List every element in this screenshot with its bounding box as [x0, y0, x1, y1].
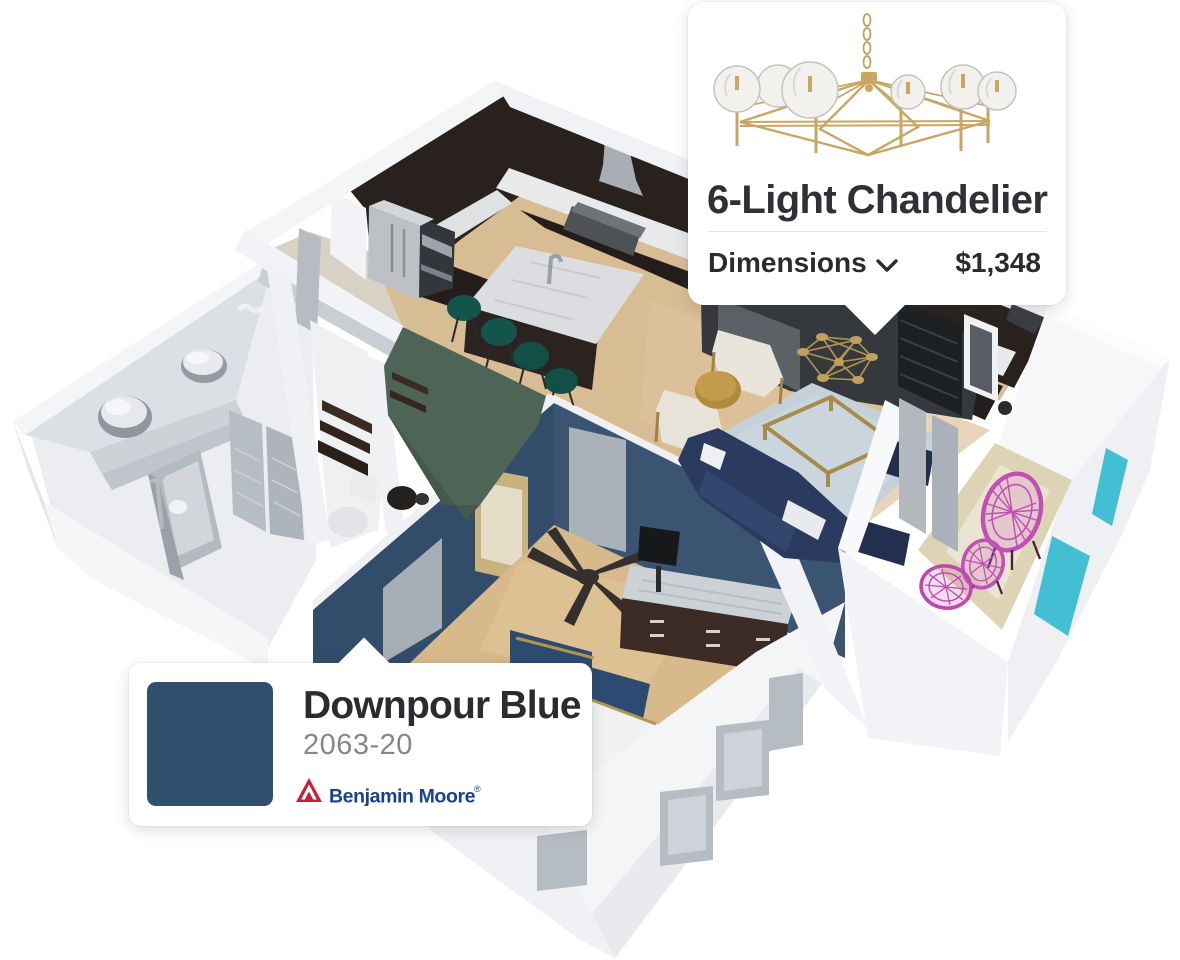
svg-text:®: ® [474, 784, 481, 794]
svg-text:Benjamin Moore: Benjamin Moore [329, 786, 476, 807]
